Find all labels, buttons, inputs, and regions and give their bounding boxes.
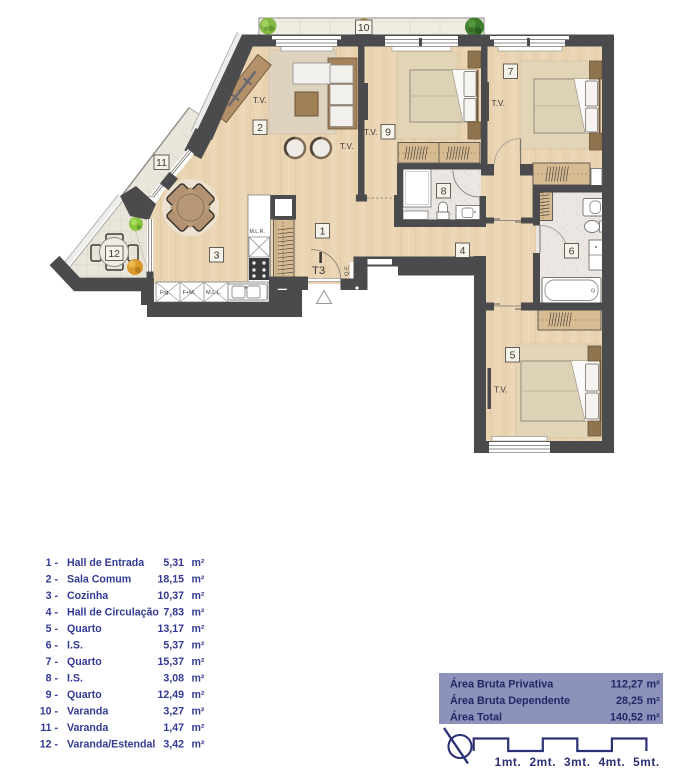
svg-text:m²: m²: [647, 679, 661, 691]
svg-text:Quarto: Quarto: [67, 656, 102, 668]
svg-text:I.S.: I.S.: [67, 640, 83, 652]
svg-text:Q.E.: Q.E.: [345, 264, 351, 276]
svg-text:m²: m²: [192, 640, 205, 652]
svg-text:12 -: 12 -: [40, 739, 59, 751]
svg-text:4: 4: [460, 245, 466, 257]
svg-text:4mt.: 4mt.: [599, 755, 626, 769]
svg-text:13,17: 13,17: [157, 623, 184, 635]
svg-text:10: 10: [358, 22, 370, 34]
svg-text:3,42: 3,42: [163, 739, 184, 751]
svg-text:1: 1: [320, 226, 326, 238]
svg-text:8 -: 8 -: [46, 673, 59, 685]
svg-text:10,37: 10,37: [157, 590, 184, 602]
svg-text:Varanda: Varanda: [67, 722, 108, 734]
svg-text:7: 7: [508, 66, 514, 78]
svg-text:Cozinha: Cozinha: [67, 590, 108, 602]
svg-text:6 -: 6 -: [46, 640, 59, 652]
svg-text:Área Total: Área Total: [450, 711, 502, 724]
svg-text:5,31: 5,31: [163, 557, 184, 569]
svg-text:4 -: 4 -: [46, 607, 59, 619]
svg-text:F+M.: F+M.: [183, 290, 196, 296]
svg-text:m²: m²: [647, 712, 661, 724]
svg-text:Quarto: Quarto: [67, 689, 102, 701]
svg-text:Varanda/Estendal: Varanda/Estendal: [67, 739, 155, 751]
svg-text:1,47: 1,47: [163, 722, 184, 734]
svg-text:9: 9: [385, 127, 391, 139]
svg-text:28,25: 28,25: [616, 695, 643, 707]
svg-text:m²: m²: [192, 607, 205, 619]
svg-text:3: 3: [214, 250, 220, 262]
svg-text:T.V.: T.V.: [492, 99, 505, 108]
svg-text:M.L.R.: M.L.R.: [250, 229, 265, 235]
svg-text:5mt.: 5mt.: [633, 755, 660, 769]
svg-text:m²: m²: [192, 557, 205, 569]
svg-text:6: 6: [569, 246, 575, 258]
svg-text:8: 8: [441, 186, 447, 198]
svg-text:112,27: 112,27: [611, 679, 643, 691]
svg-text:m²: m²: [192, 706, 205, 718]
svg-text:I.S.: I.S.: [67, 673, 83, 685]
svg-text:Área Bruta Dependente: Área Bruta Dependente: [450, 694, 570, 707]
svg-text:Frg.: Frg.: [160, 290, 170, 296]
svg-text:m²: m²: [192, 689, 205, 701]
svg-text:3,08: 3,08: [163, 673, 184, 685]
svg-text:Área Bruta Privativa: Área Bruta Privativa: [450, 678, 554, 691]
svg-text:m²: m²: [192, 673, 205, 685]
svg-text:3,27: 3,27: [163, 706, 184, 718]
svg-text:3mt.: 3mt.: [564, 755, 591, 769]
svg-text:7,83: 7,83: [163, 607, 184, 619]
svg-text:T3: T3: [312, 265, 325, 277]
svg-text:T.V.: T.V.: [364, 128, 377, 137]
svg-text:7 -: 7 -: [46, 656, 59, 668]
svg-text:15,37: 15,37: [157, 656, 184, 668]
svg-text:Hall de Circulação: Hall de Circulação: [67, 607, 159, 619]
svg-text:m²: m²: [192, 623, 205, 635]
svg-text:12: 12: [108, 248, 120, 260]
svg-text:Varanda: Varanda: [67, 706, 108, 718]
svg-text:3 -: 3 -: [46, 590, 59, 602]
svg-text:1mt.: 1mt.: [495, 755, 522, 769]
svg-text:m²: m²: [192, 590, 205, 602]
svg-text:T.V.: T.V.: [253, 96, 266, 105]
svg-text:m²: m²: [647, 695, 661, 707]
svg-text:Quarto: Quarto: [67, 623, 102, 635]
svg-text:M.L.L.: M.L.L.: [206, 290, 222, 296]
svg-text:10 -: 10 -: [40, 706, 59, 718]
svg-text:2: 2: [257, 122, 263, 134]
svg-text:1 -: 1 -: [46, 557, 59, 569]
svg-text:18,15: 18,15: [157, 574, 184, 586]
svg-text:9 -: 9 -: [46, 689, 59, 701]
svg-text:2 -: 2 -: [46, 574, 59, 586]
svg-text:140,52: 140,52: [610, 712, 643, 724]
svg-text:12,49: 12,49: [157, 689, 184, 701]
svg-text:m²: m²: [192, 739, 205, 751]
svg-text:T.V.: T.V.: [340, 142, 353, 151]
svg-text:m²: m²: [192, 656, 205, 668]
svg-text:2mt.: 2mt.: [529, 755, 556, 769]
svg-text:5 -: 5 -: [46, 623, 59, 635]
svg-text:5: 5: [510, 350, 516, 362]
svg-text:5,37: 5,37: [163, 640, 184, 652]
svg-text:Sala Comum: Sala Comum: [67, 574, 131, 586]
svg-text:11: 11: [156, 157, 167, 169]
svg-text:11 -: 11 -: [40, 722, 58, 734]
svg-text:m²: m²: [192, 574, 205, 586]
svg-text:m²: m²: [192, 722, 205, 734]
svg-text:T.V.: T.V.: [494, 386, 507, 395]
svg-text:Hall de Entrada: Hall de Entrada: [67, 557, 144, 569]
